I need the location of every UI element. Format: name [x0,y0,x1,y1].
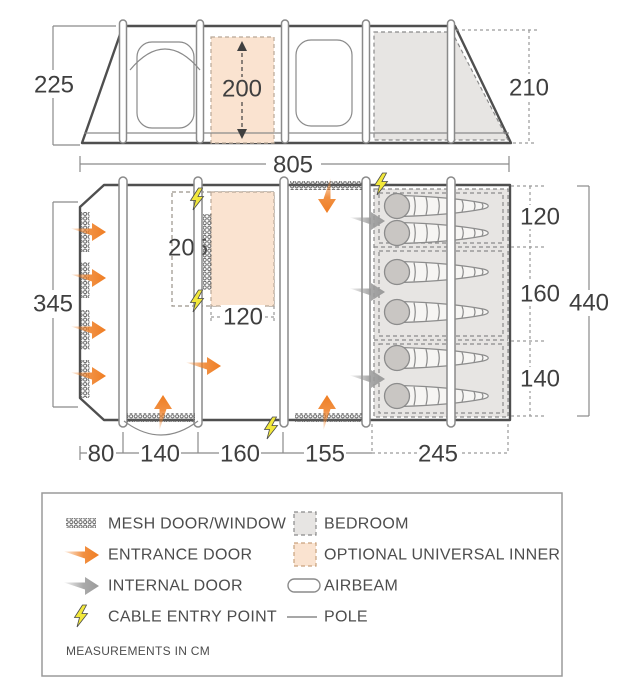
dim-440: 440 [569,290,609,317]
dim-210: 210 [509,75,549,102]
dim-160-right: 160 [520,281,560,308]
total-length-dimension: 805 [80,151,509,179]
bedroom-icon [294,512,316,535]
mesh-door-window-icon [66,518,96,528]
dim-200: 200 [222,76,262,103]
legend-label: CABLE ENTRY POINT [108,609,277,626]
dim-140-right: 140 [520,366,560,393]
diagram-canvas: 200 225 210 805 [0,0,636,688]
dim-80: 80 [88,441,115,468]
airbeam-pole [280,177,288,427]
left-side-dimension: 345 [32,202,78,407]
airbeam-pole [447,177,455,427]
legend-label: ENTRANCE DOOR [108,547,252,564]
legend-label: INTERNAL DOOR [108,578,243,595]
airbeam-pole [119,177,127,427]
legend-label: MESH DOOR/WINDOW [108,516,287,533]
dim-155: 155 [305,441,345,468]
tent-floorplan-diagram: 200 225 210 805 [0,0,636,688]
optional-universal-inner-icon [294,543,316,566]
legend-label: OPTIONAL UNIVERSAL INNER [324,547,560,564]
dim-140: 140 [140,441,180,468]
airbeam-icon [288,579,320,592]
dim-245: 245 [418,441,458,468]
airbeam-pole [282,20,289,143]
dim-345: 345 [33,291,73,318]
right-sections-dimension: 120 160 140 [511,186,562,416]
airbeam-pole [197,20,204,143]
dim-225: 225 [34,72,74,99]
elevation-bedroom-area [374,32,508,140]
dim-120-right: 120 [520,204,560,231]
airbeam-pole [362,177,370,427]
overall-width-dimension: 440 [565,186,613,416]
dim-160: 160 [220,441,260,468]
legend-label: BEDROOM [324,516,409,533]
measurements-note: MEASUREMENTS IN CM [66,644,210,658]
airbeam-pole [120,20,127,143]
mesh-door-window [81,360,90,398]
elevation-view: 200 225 210 805 [33,20,550,179]
legend-label: POLE [324,609,368,626]
airbeam-pole [363,20,370,143]
bottom-sections-dimension: 80 140 160 155 245 [80,424,508,468]
dim-805: 805 [273,152,313,179]
dim-120-inner: 120 [223,304,263,331]
floorplan-view: 205 [32,173,613,468]
bedroom-area [374,189,508,417]
inner-area [211,192,274,306]
mesh-door-window [203,214,212,290]
legend-label: AIRBEAM [324,578,398,595]
mesh-door-window [290,181,362,190]
airbeam-pole [448,20,455,143]
legend: MESH DOOR/WINDOW ENTRANCE DOOR INTERNAL … [42,493,562,676]
